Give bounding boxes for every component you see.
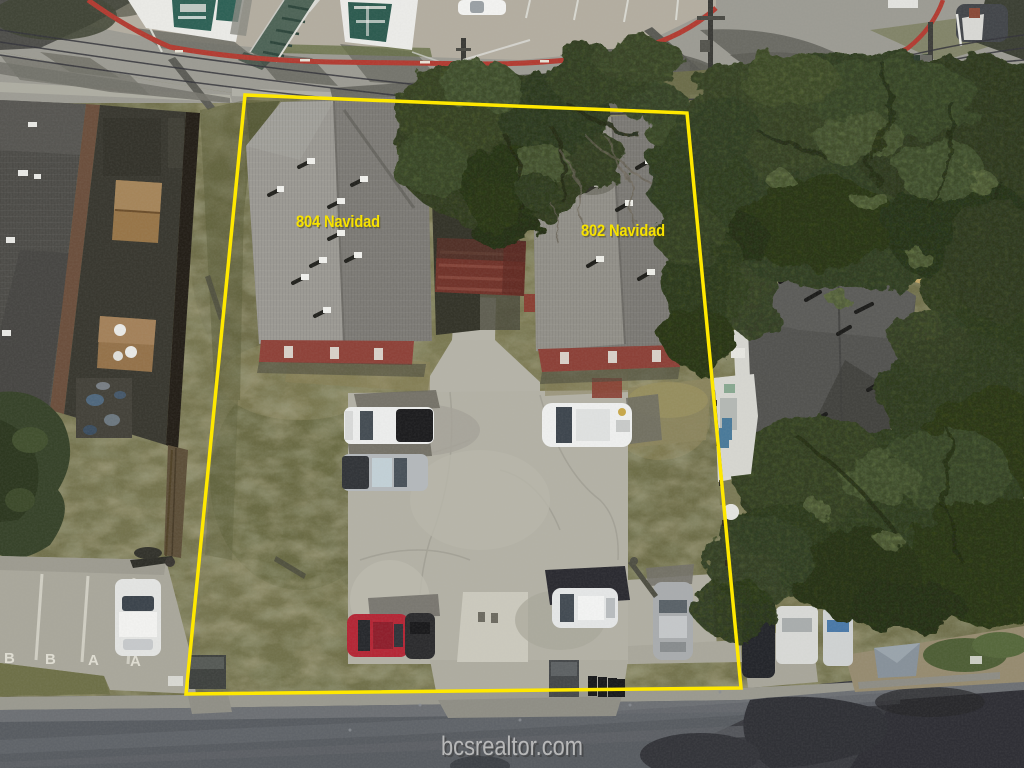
svg-text:804 Navidad: 804 Navidad <box>296 212 380 231</box>
svg-text:802 Navidad: 802 Navidad <box>581 221 665 240</box>
svg-text:bcsrealtor.com: bcsrealtor.com <box>441 731 583 761</box>
